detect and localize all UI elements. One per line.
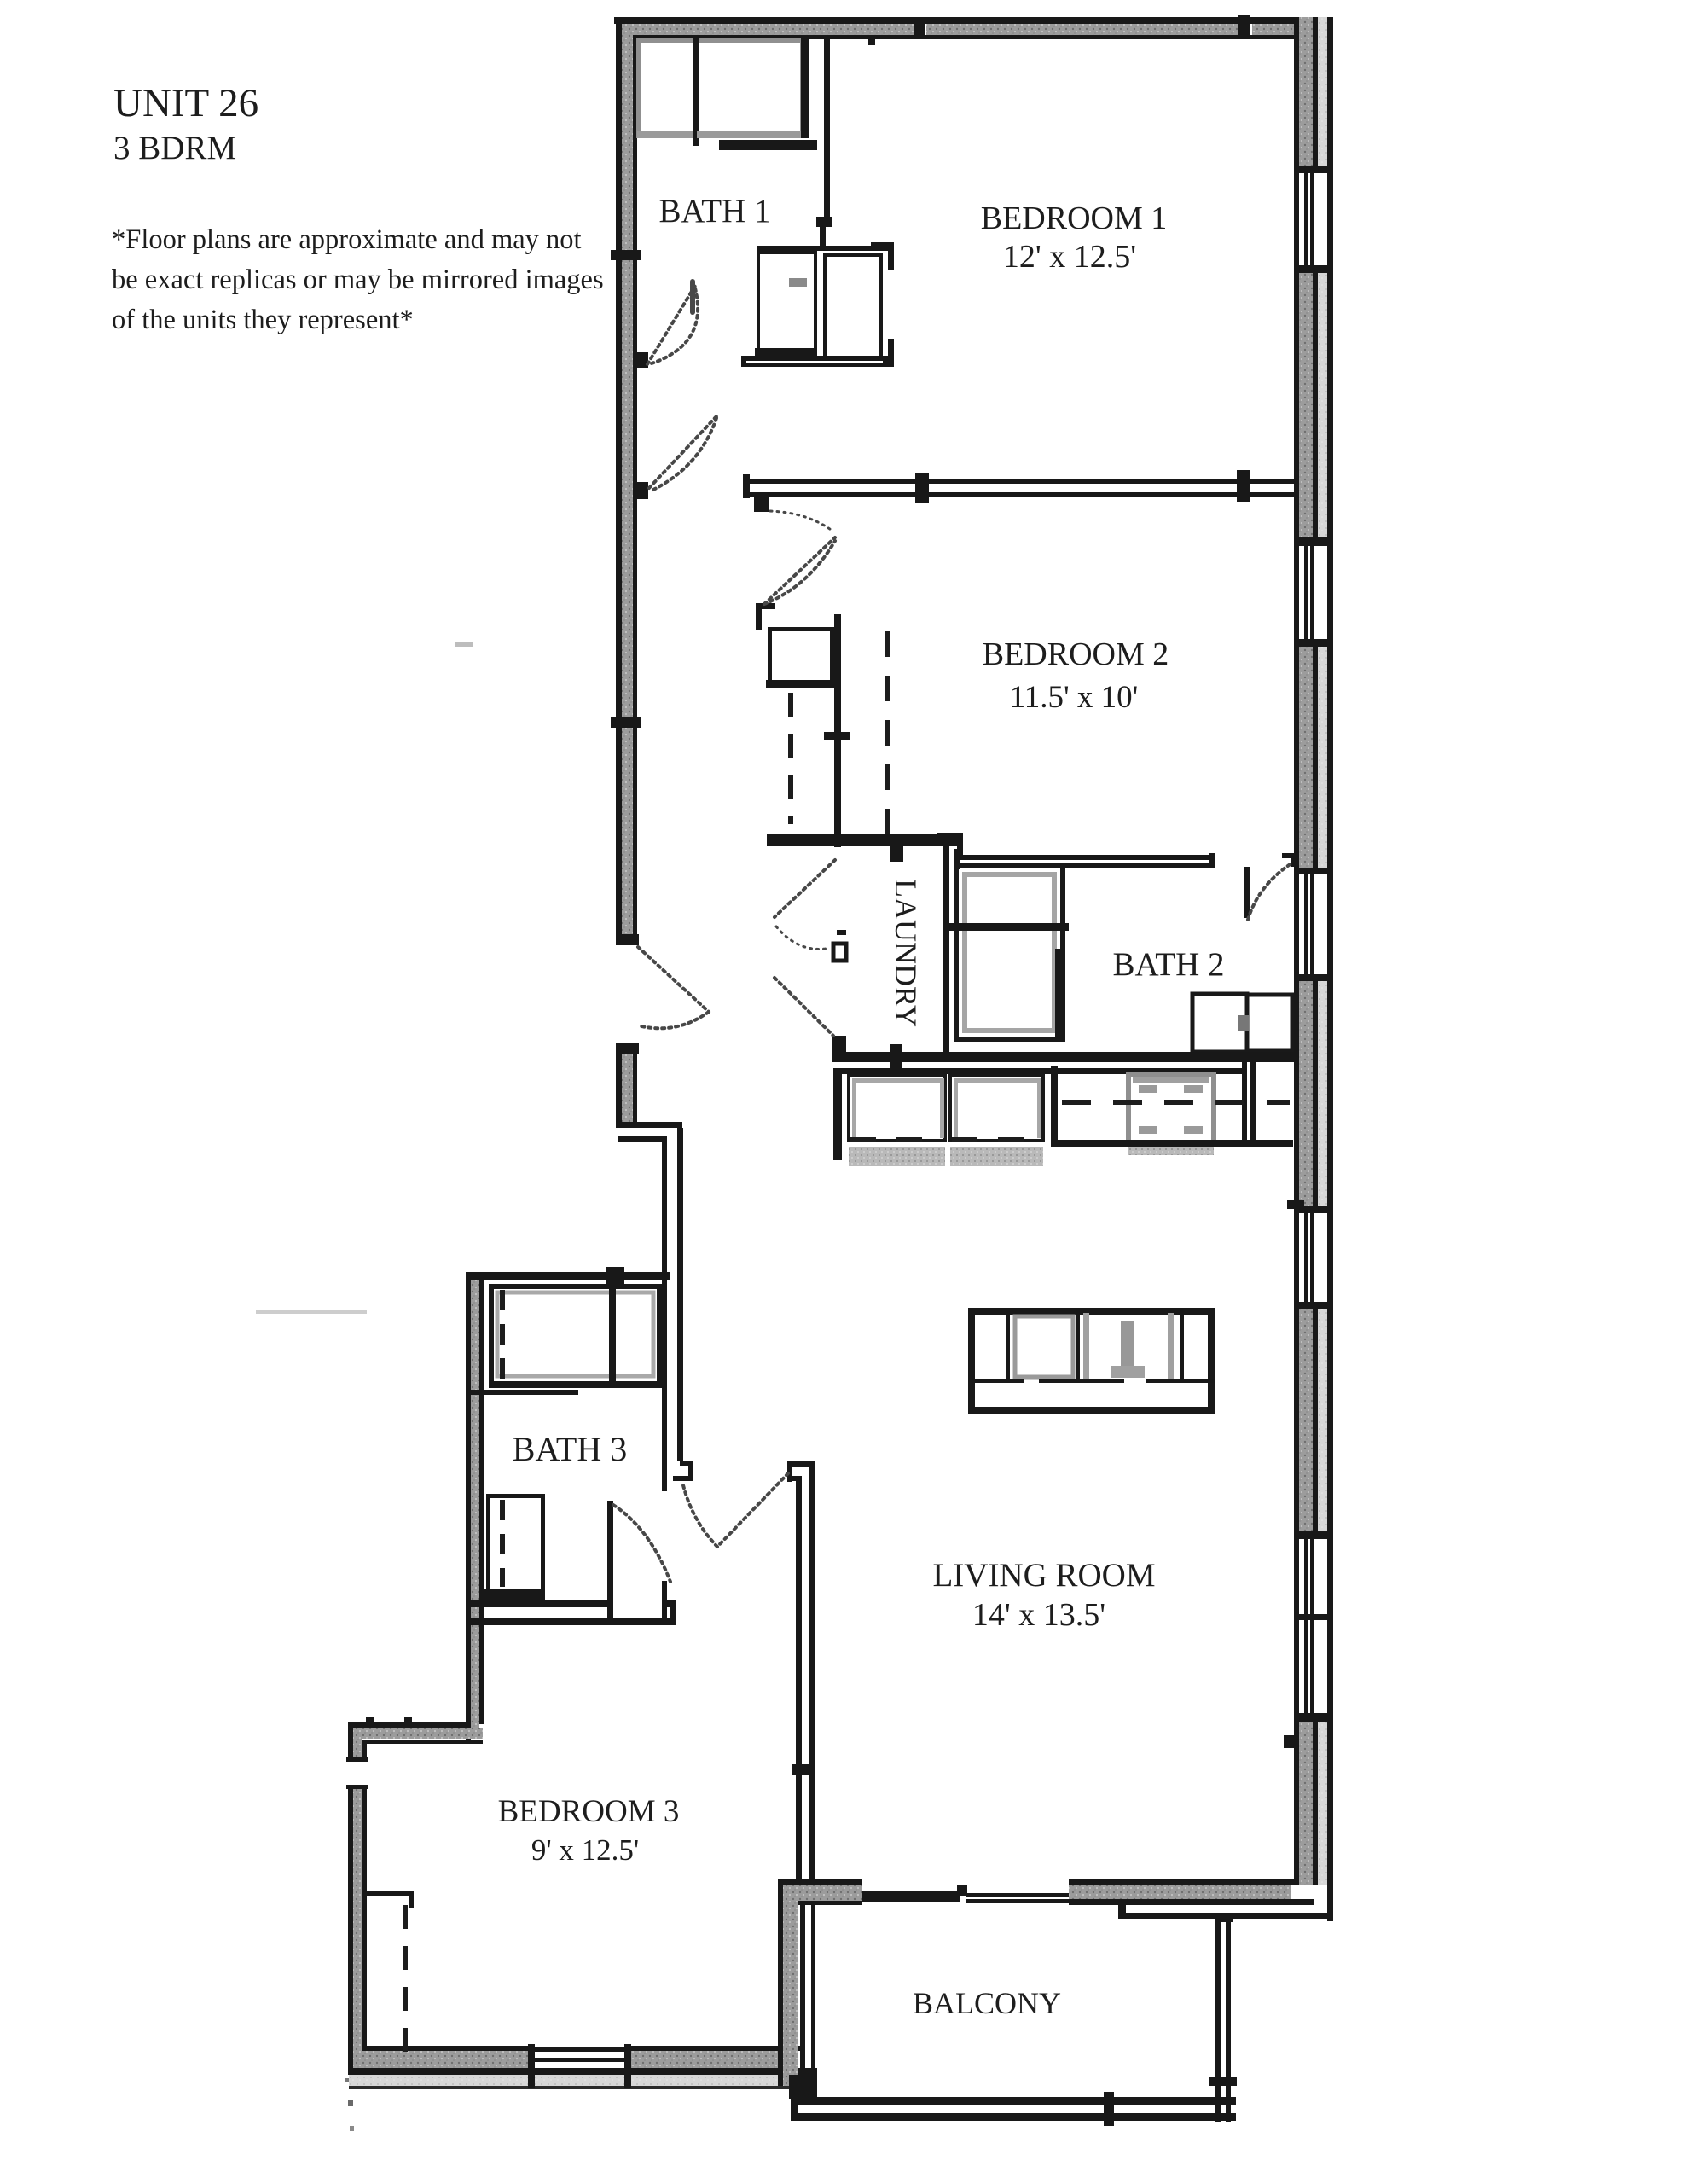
- svg-text:be exact replicas or may be mi: be exact replicas or may be mirrored ima…: [112, 264, 604, 295]
- svg-text:3 BDRM: 3 BDRM: [113, 130, 236, 166]
- svg-text:BALCONY: BALCONY: [913, 1986, 1061, 2020]
- svg-text:LAUNDRY: LAUNDRY: [889, 879, 923, 1027]
- svg-text:BATH 2: BATH 2: [1112, 946, 1224, 983]
- svg-text:14' x 13.5': 14' x 13.5': [972, 1597, 1105, 1633]
- svg-text:of the units they represent*: of the units they represent*: [112, 305, 414, 335]
- svg-text:*Floor plans are approximate a: *Floor plans are approximate and may not: [112, 224, 582, 255]
- svg-text:BEDROOM 1: BEDROOM 1: [981, 200, 1168, 236]
- svg-text:LIVING ROOM: LIVING ROOM: [932, 1557, 1155, 1594]
- svg-text:11.5' x 10': 11.5' x 10': [1010, 680, 1139, 715]
- svg-text:9' x 12.5': 9' x 12.5': [531, 1833, 639, 1867]
- svg-text:UNIT 26: UNIT 26: [113, 81, 258, 125]
- svg-text:BEDROOM 2: BEDROOM 2: [983, 636, 1169, 672]
- svg-text:BATH 1: BATH 1: [658, 193, 770, 229]
- svg-text:BEDROOM 3: BEDROOM 3: [498, 1794, 680, 1829]
- svg-text:12' x 12.5': 12' x 12.5': [1003, 239, 1136, 275]
- svg-text:BATH 3: BATH 3: [513, 1430, 627, 1468]
